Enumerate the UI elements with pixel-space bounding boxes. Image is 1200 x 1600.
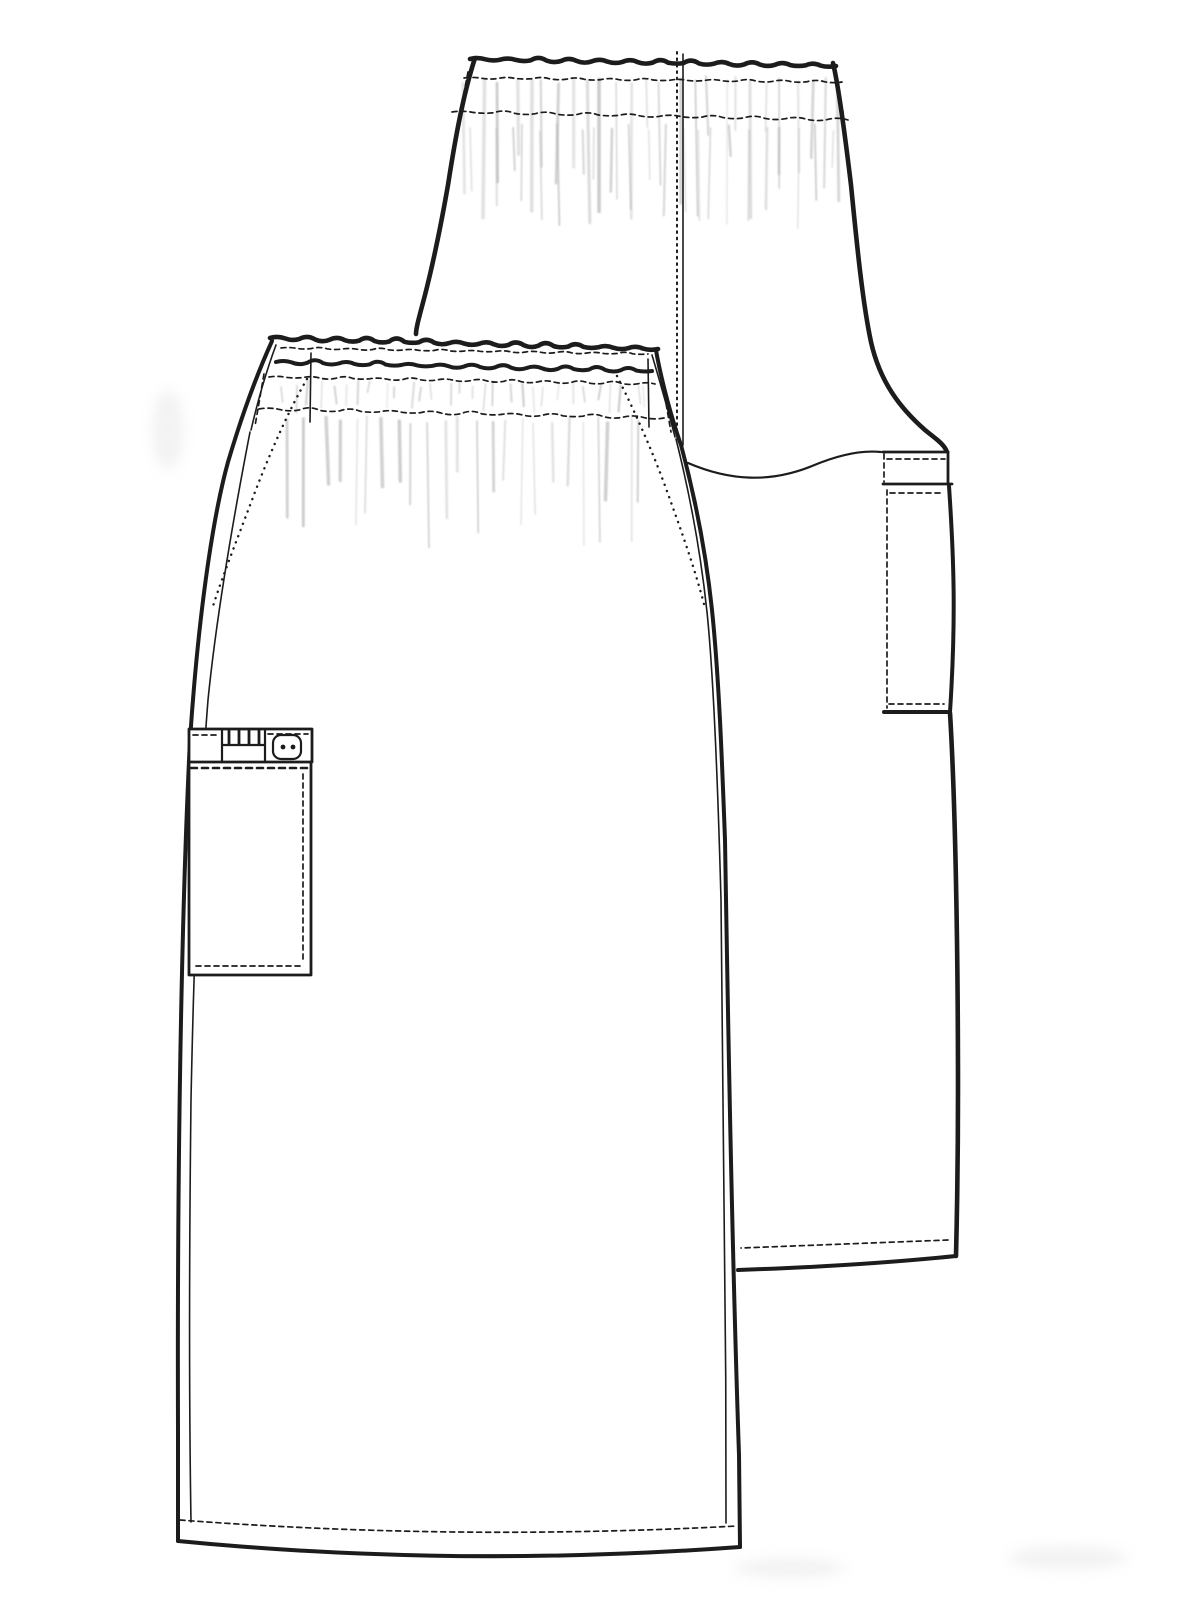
back-pocket-body-fill	[884, 484, 953, 712]
front-pocket-fill	[189, 729, 312, 975]
front-cargo-pocket	[189, 729, 312, 975]
front-view-sketch	[178, 337, 740, 1556]
front-waistband-end-seam-right	[648, 359, 649, 427]
back-cargo-pocket	[883, 452, 954, 712]
back-pocket-welt-fill	[884, 452, 948, 484]
sketch-canvas	[0, 0, 1200, 1600]
skirt-flat-sketch	[0, 0, 1200, 1600]
front-waistband-end-seam-left	[310, 353, 311, 422]
